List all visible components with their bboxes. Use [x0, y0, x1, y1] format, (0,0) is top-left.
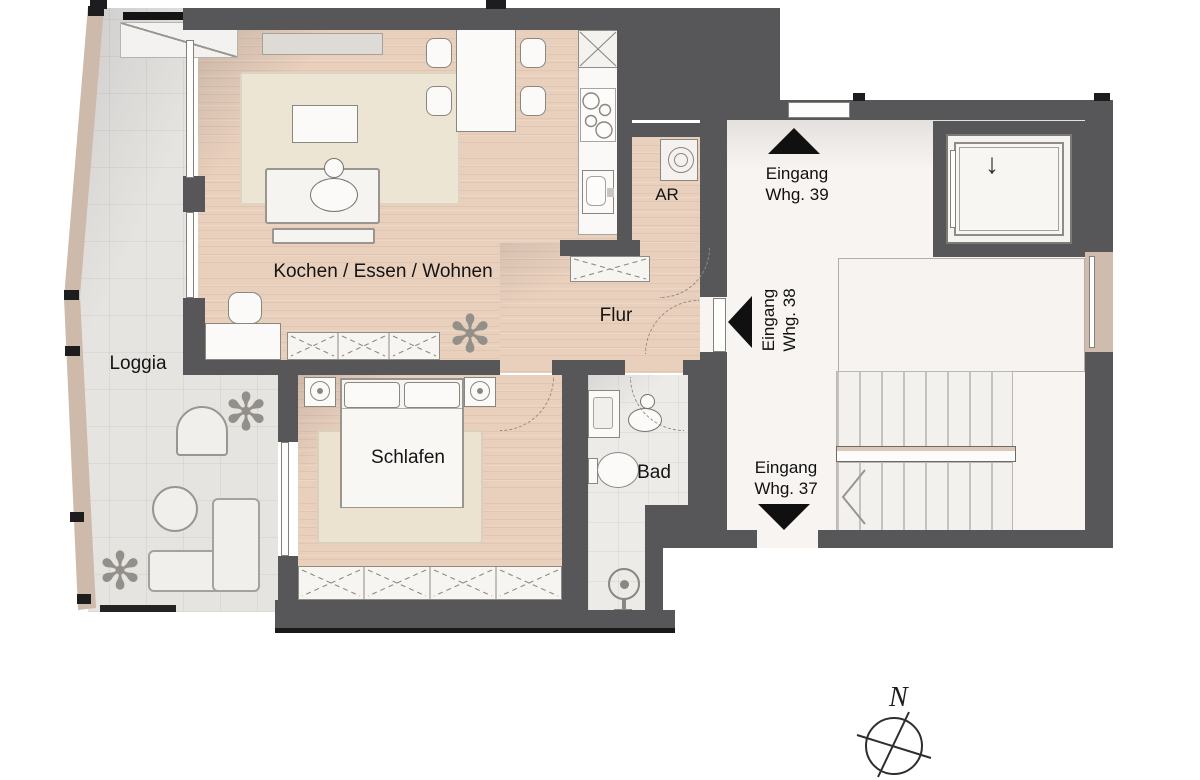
compass-icon: N	[845, 678, 945, 780]
compass-north-label: N	[888, 682, 909, 713]
kitchen-sink-basin	[586, 176, 606, 206]
dining-chair	[520, 86, 546, 116]
loggia-post	[65, 346, 80, 356]
room-label-living: Kochen / Essen / Wohnen	[273, 261, 492, 283]
stair-flight-upper	[836, 371, 1013, 448]
toilet-bowl	[597, 452, 639, 488]
dining-chair	[426, 86, 452, 116]
window-stairwell	[1089, 256, 1095, 348]
door-whg39	[788, 102, 850, 118]
living-cabinet-row	[287, 332, 440, 360]
dining-table	[456, 28, 516, 132]
loggia-post	[70, 512, 84, 522]
window-living-west	[186, 212, 194, 298]
stair-landing	[838, 258, 1085, 372]
elevator-door	[950, 150, 956, 228]
shower-head-dot	[620, 580, 629, 589]
room-label-bedroom: Schlafen	[371, 447, 445, 469]
loggia-chair	[176, 406, 228, 456]
kitchen-tap	[607, 188, 614, 197]
floor-plan: ✻ ✻ ✻ ↓	[0, 0, 1200, 780]
loggia-table	[152, 486, 198, 532]
loggia-lounger-side	[212, 498, 260, 592]
wall-bottom-shower	[570, 610, 675, 633]
entrance-arrow-whg39	[768, 128, 820, 154]
stove-icon	[580, 88, 616, 142]
plant-icon: ✻	[224, 387, 268, 439]
wall-bedroom-west-top	[278, 362, 298, 442]
wall-tick	[1094, 93, 1110, 101]
sofa-bench	[272, 228, 375, 244]
wall-bottom-main	[275, 600, 575, 633]
desk	[205, 323, 281, 360]
wall-bedroom-bath	[562, 362, 588, 612]
dining-chair	[520, 38, 546, 68]
desk-chair	[228, 292, 262, 324]
entrance-label-whg37: Eingang Whg. 37	[754, 457, 817, 500]
elevator-arrow-icon: ↓	[985, 148, 999, 180]
wall-top-living	[183, 8, 660, 30]
wall-tick	[853, 93, 865, 101]
entrance-label-whg39: Eingang Whg. 39	[765, 163, 828, 206]
door-gap-whg37	[757, 530, 818, 548]
plant-icon: ✻	[98, 546, 142, 598]
wall-stairwell-bottom	[818, 530, 1097, 548]
wall-bottom-piece	[663, 530, 757, 548]
wall-tick	[90, 0, 107, 9]
bathroom-sink-basin	[593, 397, 613, 429]
stair-direction-arrow	[837, 466, 867, 528]
wall-bath-top-right	[683, 360, 727, 375]
wall-storage-top	[632, 123, 700, 137]
room-label-loggia: Loggia	[109, 353, 166, 375]
hallway-cabinet	[570, 256, 650, 282]
floor-shower-area	[588, 523, 645, 612]
lamp-icon	[477, 388, 483, 394]
plant-icon: ✻	[448, 309, 492, 361]
room-label-storage: AR	[655, 185, 679, 205]
dining-chair	[426, 38, 452, 68]
entrance-label-line: Eingang	[765, 163, 828, 184]
wall-bath-jog	[645, 505, 705, 530]
room-label-hallway: Flur	[600, 305, 633, 327]
wall-kitchen-bottom	[560, 240, 640, 256]
loggia-bottom-bar	[100, 605, 176, 612]
entrance-label-whg38: Eingang Whg. 38	[758, 288, 801, 351]
kitchen-tall-cabinet	[578, 30, 618, 68]
wall-living-west-mullion	[183, 176, 205, 212]
room-label-bathroom: Bad	[637, 462, 671, 484]
bed-pillow	[344, 382, 400, 408]
wardrobe	[298, 566, 562, 600]
wall-entry-block	[617, 8, 780, 120]
entrance-label-line: Whg. 38	[779, 288, 800, 351]
loggia-post	[64, 290, 79, 300]
loggia-post	[77, 594, 91, 604]
elevator-car-inner	[959, 147, 1059, 231]
lamp-icon	[317, 388, 323, 394]
entrance-arrow-whg37	[758, 504, 810, 530]
entrance-label-line: Eingang	[754, 457, 817, 478]
entrance-label-line: Whg. 39	[765, 184, 828, 205]
entrance-label-line: Whg. 37	[754, 478, 817, 499]
coffee-table	[292, 105, 358, 143]
person-figure	[310, 178, 358, 212]
wall-bath-right	[688, 375, 705, 523]
sideboard	[262, 33, 383, 55]
wall-tick	[486, 0, 506, 9]
stair-handrail	[836, 446, 1016, 462]
person-head	[324, 158, 344, 178]
bed-pillow	[404, 382, 460, 408]
entrance-label-line: Eingang	[758, 288, 779, 351]
wall-kitchen-east	[617, 120, 632, 256]
wall-bedroom-top	[203, 360, 500, 375]
wall-bedroom-west-bottom	[278, 556, 298, 628]
wall-shower-right	[645, 530, 663, 612]
window-bedroom-west	[281, 442, 289, 556]
wall-living-west-corner	[183, 298, 205, 375]
door-leaf-whg38	[713, 298, 726, 352]
washing-machine-drum-inner	[674, 153, 688, 167]
window-living-west	[186, 40, 194, 178]
entrance-arrow-whg38	[728, 296, 752, 348]
